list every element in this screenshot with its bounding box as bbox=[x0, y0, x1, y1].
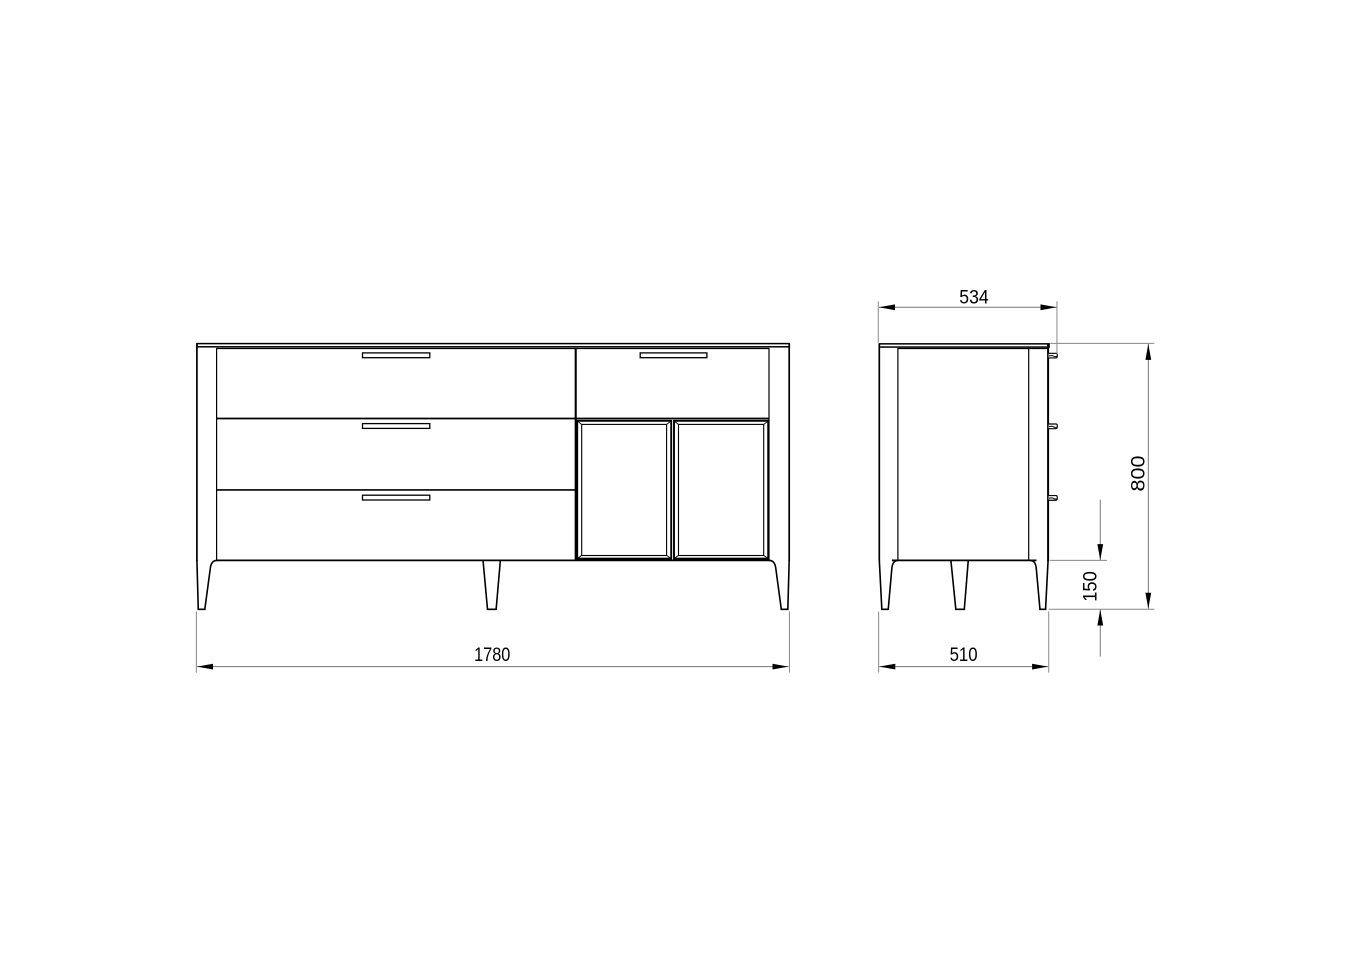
svg-text:510: 510 bbox=[950, 644, 978, 666]
svg-text:534: 534 bbox=[959, 287, 989, 309]
svg-text:800: 800 bbox=[1127, 455, 1149, 491]
svg-text:1780: 1780 bbox=[474, 644, 510, 666]
svg-text:150: 150 bbox=[1079, 571, 1101, 602]
